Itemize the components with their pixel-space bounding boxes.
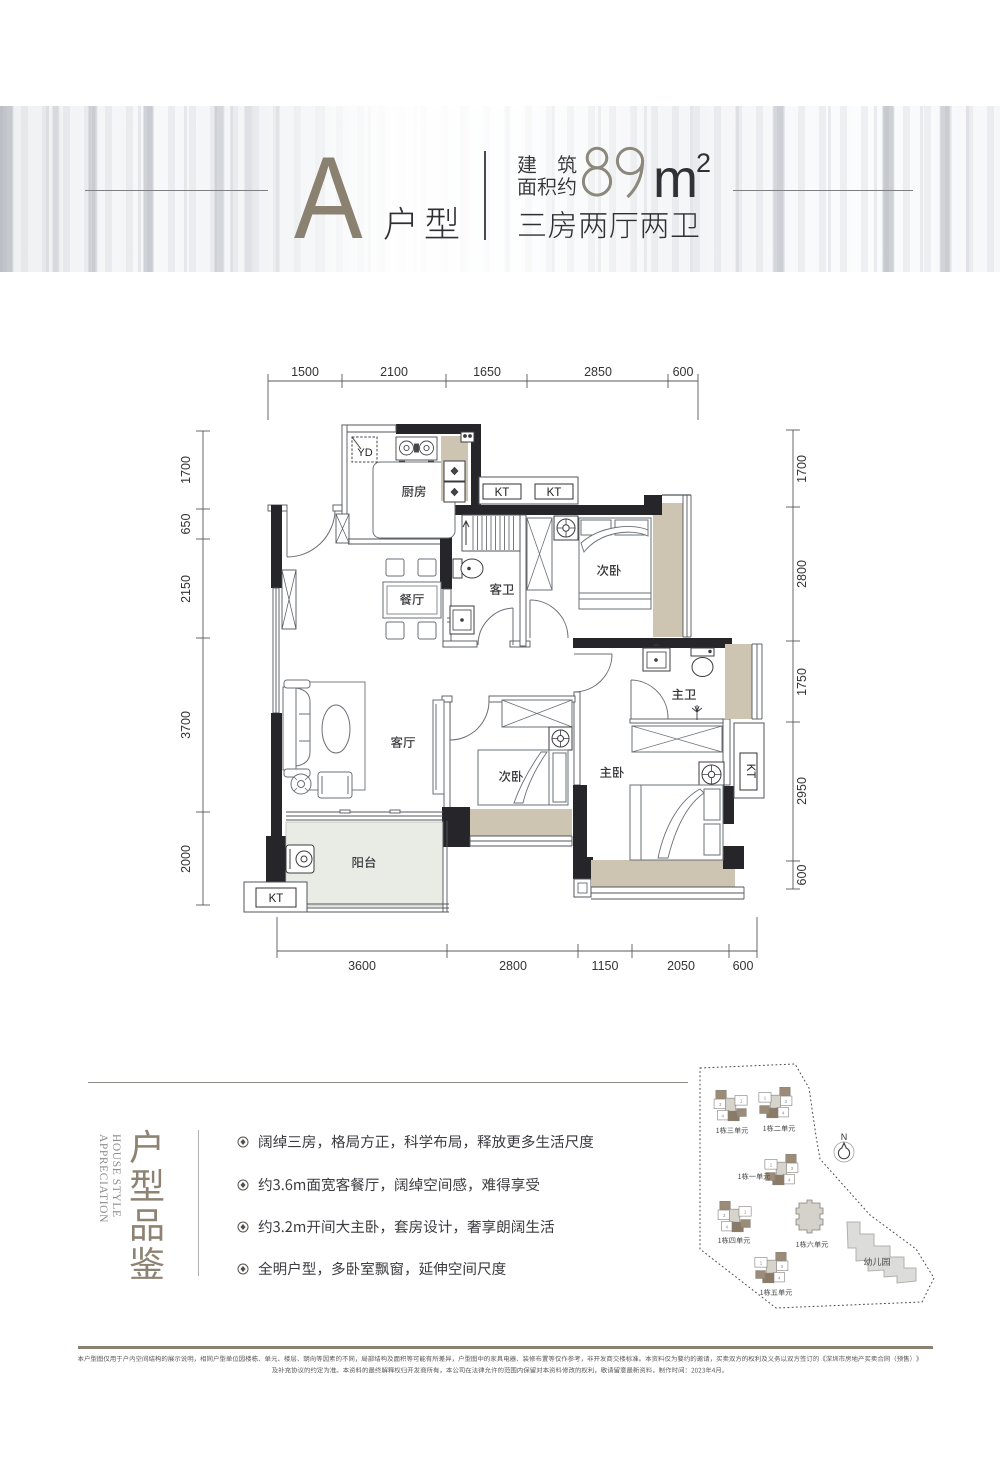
svg-text:2850: 2850	[584, 365, 612, 379]
svg-text:3700: 3700	[179, 711, 193, 739]
svg-text:2000: 2000	[179, 845, 193, 873]
svg-text:1500: 1500	[291, 365, 319, 379]
svg-text:650: 650	[179, 514, 193, 535]
svg-text:APPRECIATION: APPRECIATION	[97, 1134, 109, 1223]
svg-text:1700: 1700	[179, 456, 193, 484]
svg-text:600: 600	[733, 959, 754, 973]
svg-text:KT: KT	[495, 487, 510, 499]
svg-text:2800: 2800	[795, 560, 809, 588]
svg-text:2150: 2150	[179, 575, 193, 603]
svg-text:2800: 2800	[499, 959, 527, 973]
svg-text:600: 600	[795, 865, 809, 886]
svg-text:2950: 2950	[795, 777, 809, 805]
svg-text:2: 2	[696, 148, 711, 178]
svg-text:1650: 1650	[473, 365, 501, 379]
svg-text:1150: 1150	[592, 959, 619, 973]
svg-text:1750: 1750	[795, 668, 809, 696]
svg-text:N: N	[841, 1132, 848, 1142]
svg-text:600: 600	[673, 365, 694, 379]
svg-text:3600: 3600	[348, 959, 376, 973]
svg-text:A: A	[294, 133, 363, 264]
svg-text:2050: 2050	[667, 959, 695, 973]
svg-text:KT: KT	[547, 487, 562, 499]
svg-text:1700: 1700	[795, 455, 809, 483]
svg-text:2100: 2100	[380, 365, 408, 379]
svg-text:KT: KT	[744, 764, 756, 779]
svg-text:HOUSE STYLE: HOUSE STYLE	[110, 1134, 122, 1218]
svg-text:KT: KT	[269, 893, 284, 905]
svg-text:YD: YD	[357, 447, 372, 459]
svg-text:m: m	[653, 149, 698, 209]
